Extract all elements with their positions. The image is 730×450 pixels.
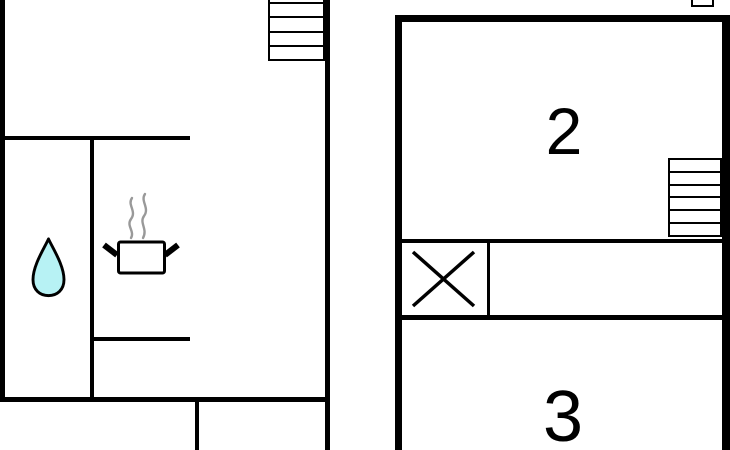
stair-tread <box>670 173 720 186</box>
stair-tread <box>270 18 323 32</box>
stair-tread <box>270 4 323 18</box>
crossed-box-icon <box>400 243 487 315</box>
water-drop-shape <box>33 239 64 296</box>
stair-tread <box>670 211 720 224</box>
stairs-icon <box>668 158 722 237</box>
crossed-box-divider <box>487 243 490 315</box>
cooking-pot-icon <box>100 192 182 280</box>
bottom-wall <box>0 397 330 402</box>
interior-wall-horizontal-lower <box>94 337 190 341</box>
lower-room-divider <box>195 402 199 450</box>
stair-tread <box>270 47 323 59</box>
window-icon <box>691 0 714 7</box>
steam-icon <box>129 198 133 238</box>
steam-icon <box>142 194 146 238</box>
room-3-label: 3 <box>543 381 583 450</box>
left-outer-wall <box>0 0 5 402</box>
pot-handle-right <box>165 245 178 255</box>
floorplan-canvas: 2 3 <box>0 0 730 450</box>
pot-handle-left <box>104 245 117 255</box>
water-drop-icon <box>29 237 68 299</box>
stair-tread <box>670 160 720 173</box>
stair-tread <box>670 198 720 211</box>
interior-wall-vertical <box>90 136 94 402</box>
stair-tread <box>670 186 720 199</box>
room-2-label: 2 <box>546 98 583 164</box>
outer-wall-top <box>395 15 730 22</box>
stair-tread <box>670 224 720 235</box>
pot-body <box>119 242 165 273</box>
stair-tread <box>270 33 323 47</box>
stairs-icon <box>268 0 325 61</box>
corridor-bottom-wall <box>395 315 730 320</box>
right-outer-wall <box>325 0 330 450</box>
outer-wall-left <box>395 15 402 450</box>
outer-wall-right <box>722 15 730 450</box>
interior-wall-horizontal-upper <box>0 136 190 140</box>
